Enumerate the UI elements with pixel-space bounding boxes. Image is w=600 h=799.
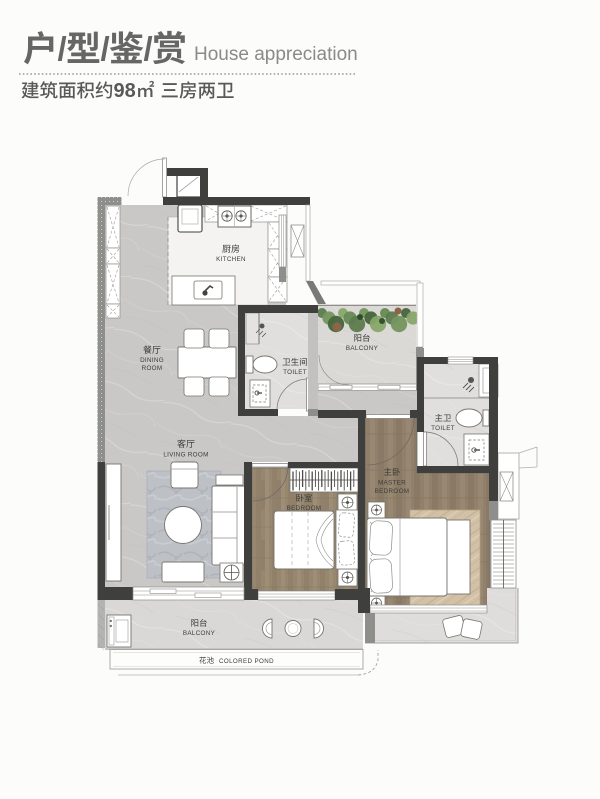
svg-text:ROOM: ROOM xyxy=(142,365,163,372)
svg-text:BEDROOM: BEDROOM xyxy=(375,488,410,495)
svg-text:KITCHEN: KITCHEN xyxy=(216,256,246,263)
svg-text:COLORED POND: COLORED POND xyxy=(219,658,274,665)
svg-text:BALCONY: BALCONY xyxy=(183,630,216,637)
svg-text:TOILET: TOILET xyxy=(431,425,455,432)
svg-text:98: 98 xyxy=(114,80,136,102)
svg-text:TOILET: TOILET xyxy=(283,369,307,376)
svg-text:House appreciation: House appreciation xyxy=(194,44,358,65)
svg-text:/: / xyxy=(101,30,110,67)
svg-text:DINING: DINING xyxy=(140,357,164,364)
svg-text:MASTER: MASTER xyxy=(378,480,406,487)
svg-text:LIVING ROOM: LIVING ROOM xyxy=(163,452,208,459)
svg-text:BALCONY: BALCONY xyxy=(346,345,379,352)
svg-text:/: / xyxy=(144,30,153,67)
svg-text:BEDROOM: BEDROOM xyxy=(287,505,322,512)
svg-text:/: / xyxy=(58,30,67,67)
